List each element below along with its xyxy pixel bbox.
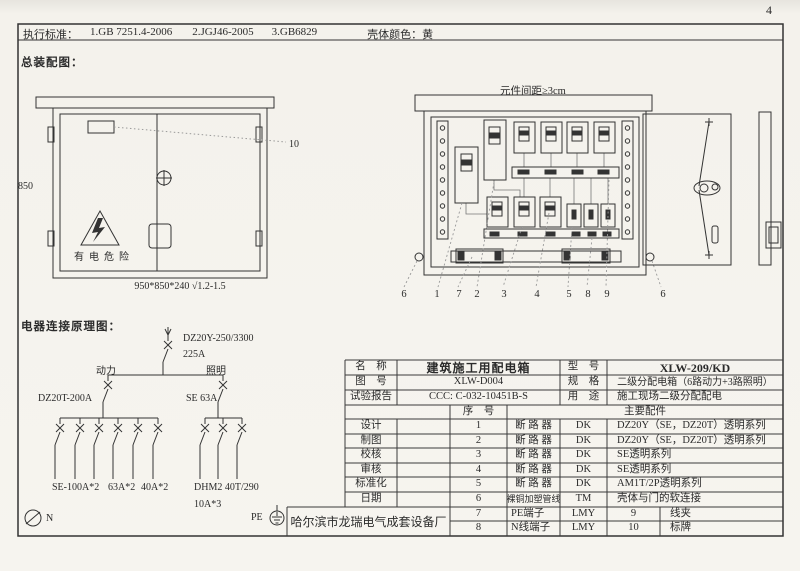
row-code: TM <box>560 492 607 507</box>
callout-number: 3 <box>497 289 511 300</box>
row-desc: AM1T/2P透明系列 <box>607 477 783 492</box>
sign-label-standard: 标准化 <box>345 477 397 492</box>
top-row-breakers <box>514 122 615 153</box>
ground-point-right <box>646 253 654 261</box>
row-code: DK <box>560 463 607 477</box>
row-extra-name: 标牌 <box>660 521 783 536</box>
power-breaker-symbol <box>103 375 112 402</box>
row-seq: 7 <box>450 507 507 521</box>
row-seq: 2 <box>450 434 507 448</box>
main-breaker-symbol <box>163 335 172 362</box>
lighting-branch-model: DHM2 40T/290 <box>194 482 259 493</box>
seq-header: 序 号 <box>450 405 507 419</box>
schematic-drawing <box>25 327 284 526</box>
shell-color-label: 壳体颜色： <box>367 26 422 42</box>
row-code: DK <box>560 419 607 434</box>
report-value: CCC: C-032-10451B-S <box>397 390 560 405</box>
sign-label-design: 设计 <box>345 419 397 434</box>
sign-label-review: 审核 <box>345 463 397 477</box>
assembly-section-title: 总装配图： <box>21 54 84 70</box>
parts-header: 主要配件 <box>507 405 783 419</box>
row-desc: SE透明系列 <box>607 448 783 463</box>
page-number: 4 <box>766 3 772 18</box>
callout-number: 1 <box>430 289 444 300</box>
open-door <box>643 114 731 265</box>
factory-name: 哈尔滨市龙瑞电气成套设备厂 <box>288 507 449 536</box>
use-value: 施工现场二级分配配电 <box>607 390 783 405</box>
row-code: DK <box>560 477 607 492</box>
row-code: LMY <box>560 521 607 536</box>
power-branch-label: 63A*2 <box>108 482 135 493</box>
row-code: LMY <box>560 507 607 521</box>
standard-item: 3.GB6829 <box>272 26 318 42</box>
callout-number: 8 <box>581 289 595 300</box>
model-label: 型 号 <box>560 360 607 375</box>
callout-number: 5 <box>562 289 576 300</box>
lighting-branch-rating: 10A*3 <box>194 499 221 510</box>
drawing-no-label: 图 号 <box>345 375 397 390</box>
name-plate <box>88 121 114 133</box>
neutral-symbol <box>25 510 41 526</box>
row-name: 断 路 器 <box>507 434 560 448</box>
row-code: DK <box>560 448 607 463</box>
row-desc: SE透明系列 <box>607 463 783 477</box>
power-branch-breakers <box>55 418 162 479</box>
row-name: 断 路 器 <box>507 448 560 463</box>
row-seq: 3 <box>450 448 507 463</box>
drawing-no-value: XLW-D004 <box>397 375 560 390</box>
lighting-breaker-label: SE 63A <box>186 393 217 404</box>
shell-color-value: 黄 <box>422 26 433 42</box>
row-name: N线端子 <box>507 521 560 536</box>
model-value: XLW-209/KD <box>607 360 783 375</box>
power-label: 动力 <box>96 362 116 377</box>
row-name: 断 路 器 <box>507 463 560 477</box>
lighting-branch-breakers <box>200 418 246 479</box>
standards-bar: 执行标准： 1.GB 7251.4-2006 2.JGJ46-2005 3.GB… <box>23 26 433 42</box>
lighting-label: 照明 <box>206 362 226 377</box>
pe-label: PE <box>251 512 263 523</box>
height-dimension: 850 <box>18 181 33 192</box>
name-value: 建筑施工用配电箱 <box>397 360 560 375</box>
name-label: 名 称 <box>345 360 397 375</box>
main-breaker-rating: 225A <box>183 349 205 360</box>
sign-label-draft: 制图 <box>345 434 397 448</box>
sign-label-date: 日期 <box>345 492 397 507</box>
standard-item: 1.GB 7251.4-2006 <box>90 26 172 42</box>
row-extra-seq: 9 <box>607 507 660 521</box>
callout-number: 4 <box>530 289 544 300</box>
callout-number: 6 <box>656 289 670 300</box>
cable-channel <box>451 249 621 263</box>
cabinet-open-view <box>404 95 781 287</box>
row-name: 裸铜加塑管线 <box>507 492 560 507</box>
row-seq: 4 <box>450 463 507 477</box>
row-extra-name: 线夹 <box>660 507 783 521</box>
row-seq: 6 <box>450 492 507 507</box>
row-seq: 5 <box>450 477 507 492</box>
spacing-note: 元件间距≥3cm <box>500 83 566 98</box>
door-handle-icon <box>156 170 172 186</box>
power-branch-label: SE-100A*2 <box>52 482 99 493</box>
power-branch-label: 40A*2 <box>141 482 168 493</box>
bottom-row-breakers <box>487 197 561 227</box>
use-label: 用 途 <box>560 390 607 405</box>
callout-number: 7 <box>452 289 466 300</box>
door-handle-icon <box>694 181 720 195</box>
upper-terminal-strip <box>512 167 619 178</box>
report-label: 试验报告 <box>345 390 397 405</box>
callout-number: 2 <box>470 289 484 300</box>
side-panel <box>759 112 781 265</box>
size-note: 950*850*240 √1.2-1.5 <box>110 281 250 292</box>
row-desc: 壳体与门的软连接 <box>607 492 783 507</box>
lock-box <box>149 224 171 248</box>
neutral-label: N <box>46 513 53 524</box>
hazard-text: 有电危险 <box>74 248 134 263</box>
row-desc: DZ20Y（SE，DZ20T）透明系列 <box>607 419 783 434</box>
power-breaker-label: DZ20T-200A <box>38 393 92 404</box>
power-feed-breaker <box>484 120 506 180</box>
row-seq: 1 <box>450 419 507 434</box>
row-code: DK <box>560 434 607 448</box>
main-breaker-model: DZ20Y-250/3300 <box>183 333 254 344</box>
row-extra-seq: 10 <box>607 521 660 536</box>
plate-callout: 10 <box>289 139 299 150</box>
callout-number: 9 <box>600 289 614 300</box>
sign-label-check: 校核 <box>345 448 397 463</box>
schematic-section-title: 电器连接原理图： <box>21 318 121 334</box>
ground-point-left <box>415 253 423 261</box>
standards-label: 执行标准： <box>23 26 78 42</box>
standard-item: 2.JGJ46-2005 <box>192 26 253 42</box>
lower-terminal-strip <box>484 229 619 238</box>
main-breaker <box>455 147 478 203</box>
row-desc: DZ20Y（SE，DZ20T）透明系列 <box>607 434 783 448</box>
row-seq: 8 <box>450 521 507 536</box>
row-name: 断 路 器 <box>507 419 560 434</box>
row-name: 断 路 器 <box>507 477 560 492</box>
pe-earth-symbol <box>270 505 284 525</box>
roof <box>36 97 274 108</box>
callout-number: 6 <box>397 289 411 300</box>
electric-hazard-icon <box>81 211 119 245</box>
hinges <box>48 127 262 246</box>
spec-value: 二级分配电箱（6路动力+3路照明） <box>607 375 783 390</box>
spec-label: 规 格 <box>560 375 607 390</box>
row-name: PE端子 <box>507 507 560 521</box>
lighting-breaker-symbol <box>218 375 227 402</box>
